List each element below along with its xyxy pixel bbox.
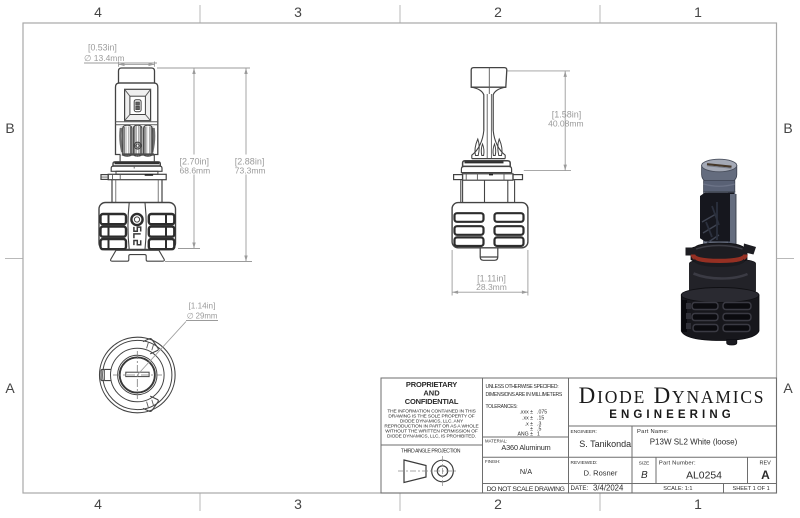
svg-text:40.08mm: 40.08mm: [548, 118, 583, 128]
svg-text:Part Number:: Part Number:: [659, 460, 696, 466]
svg-text:THIRD ANGLE PROJECTION: THIRD ANGLE PROJECTION: [401, 449, 461, 455]
svg-text:CONFIDENTIAL: CONFIDENTIAL: [405, 397, 459, 406]
svg-text:B: B: [641, 470, 648, 481]
svg-text:DIODE DYNAMICS: DIODE DYNAMICS: [579, 383, 766, 408]
svg-text:1: 1: [694, 496, 702, 512]
svg-text:68.6mm: 68.6mm: [180, 166, 211, 176]
svg-text:A360 Aluminum: A360 Aluminum: [501, 443, 550, 452]
svg-text:[0.53in]: [0.53in]: [88, 43, 117, 53]
svg-text:SIZE: SIZE: [639, 460, 649, 465]
svg-text:ENGINEER:: ENGINEER:: [571, 429, 597, 435]
svg-text:S. Tanikonda: S. Tanikonda: [579, 439, 631, 449]
svg-text:P13W SL2 White (loose): P13W SL2 White (loose): [650, 438, 738, 447]
svg-text:Part Name:: Part Name:: [637, 429, 669, 435]
svg-text:1: 1: [537, 432, 540, 438]
svg-text:3/4/2024: 3/4/2024: [593, 483, 624, 492]
svg-text:3: 3: [294, 4, 302, 20]
svg-text:73.3mm: 73.3mm: [235, 166, 266, 176]
svg-text:DATE:: DATE:: [571, 485, 589, 492]
svg-text:N/A: N/A: [520, 467, 532, 476]
svg-text:DIMENSIONS ARE IN MILLIMETERS: DIMENSIONS ARE IN MILLIMETERS: [486, 392, 563, 398]
svg-text:2: 2: [494, 4, 502, 20]
svg-text:4: 4: [94, 4, 102, 20]
svg-text:B: B: [5, 120, 14, 136]
svg-text:28.3mm: 28.3mm: [476, 282, 507, 292]
svg-text:D. Rosner: D. Rosner: [584, 469, 618, 478]
svg-text:ENGINEERING: ENGINEERING: [609, 409, 735, 421]
svg-text:∅ 29mm: ∅ 29mm: [187, 311, 218, 320]
svg-text:A: A: [783, 380, 793, 396]
svg-text:UNLESS OTHERWISE SPECIFIED:: UNLESS OTHERWISE SPECIFIED:: [486, 384, 559, 390]
svg-text:[1.14in]: [1.14in]: [189, 302, 216, 311]
svg-text:AL0254: AL0254: [686, 471, 722, 482]
svg-text:REVIEWED:: REVIEWED:: [571, 460, 598, 466]
svg-text:REV: REV: [760, 460, 772, 466]
svg-text:SCALE: 1:1: SCALE: 1:1: [663, 486, 692, 492]
svg-text:SHEET 1 OF 1: SHEET 1 OF 1: [733, 486, 770, 492]
svg-text:DIODE DYNAMICS, LLC, IS PROHIB: DIODE DYNAMICS, LLC, IS PROHIBITED.: [387, 434, 476, 440]
svg-text:FINISH:: FINISH:: [485, 459, 500, 464]
svg-text:ANG ±: ANG ±: [517, 432, 533, 438]
svg-text:1: 1: [694, 4, 702, 20]
svg-text:4: 4: [94, 496, 102, 512]
svg-text:DO NOT SCALE DRAWING: DO NOT SCALE DRAWING: [487, 486, 565, 493]
svg-text:B: B: [783, 120, 792, 136]
svg-text:A: A: [5, 380, 15, 396]
svg-text:3: 3: [294, 496, 302, 512]
svg-text:2: 2: [494, 496, 502, 512]
svg-text:A: A: [761, 468, 770, 482]
svg-text:TOLERANCES:: TOLERANCES:: [486, 404, 518, 410]
